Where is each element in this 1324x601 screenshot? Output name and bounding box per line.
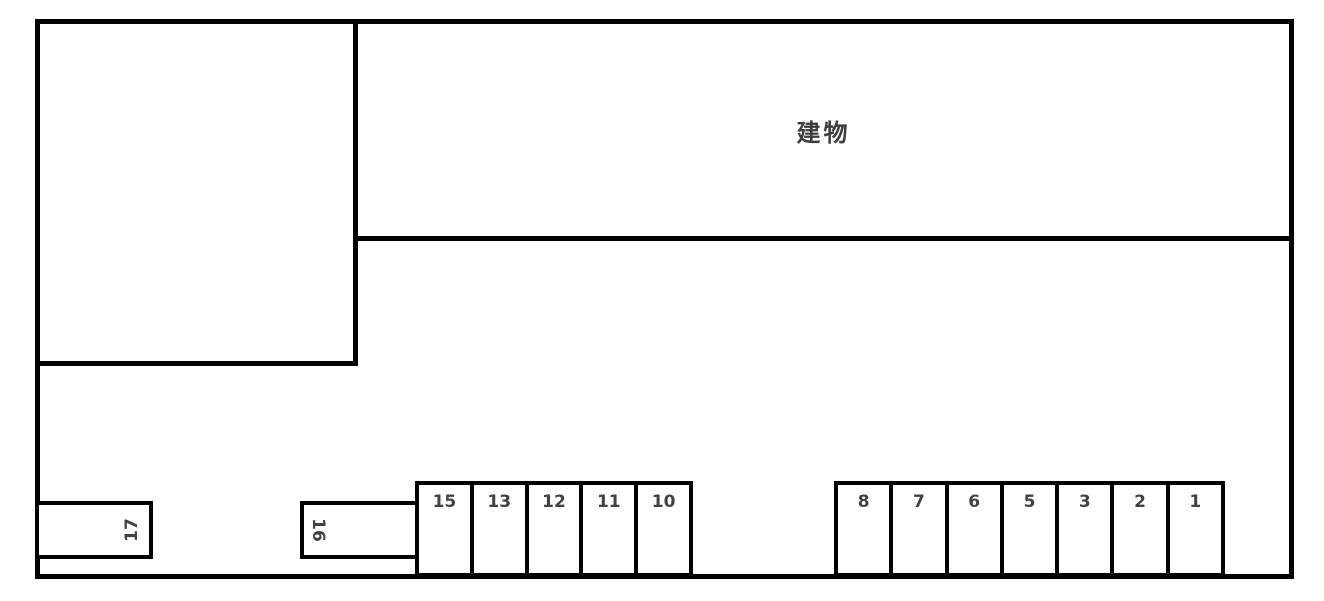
parking-stall-12: 12 [525,481,584,577]
parking-stall-6: 6 [945,481,1004,577]
parking-stall-11: 11 [579,481,638,577]
parking-stall-7: 7 [889,481,948,577]
parking-stall-8: 8 [834,481,893,577]
parking-stall-2: 2 [1110,481,1169,577]
stall-row-left: 15 13 12 11 10 [415,481,693,577]
upper-left-area [35,19,358,366]
parking-stall-1: 1 [1166,481,1225,577]
building-label: 建物 [797,113,851,148]
parking-stall-10: 10 [634,481,693,577]
parking-stall-17: 17 [35,501,153,559]
stall-number: 17 [123,512,141,548]
parking-stall-15: 15 [415,481,474,577]
parking-lot-diagram: 建物 17 16 15 13 12 11 10 8 7 6 5 3 2 1 [0,0,1324,601]
parking-stall-16: 16 [300,501,419,559]
building-area: 建物 [353,19,1294,241]
stall-row-right: 8 7 6 5 3 2 1 [834,481,1225,577]
stall-number: 16 [309,512,327,548]
parking-stall-13: 13 [470,481,529,577]
parking-stall-3: 3 [1055,481,1114,577]
parking-stall-5: 5 [1000,481,1059,577]
